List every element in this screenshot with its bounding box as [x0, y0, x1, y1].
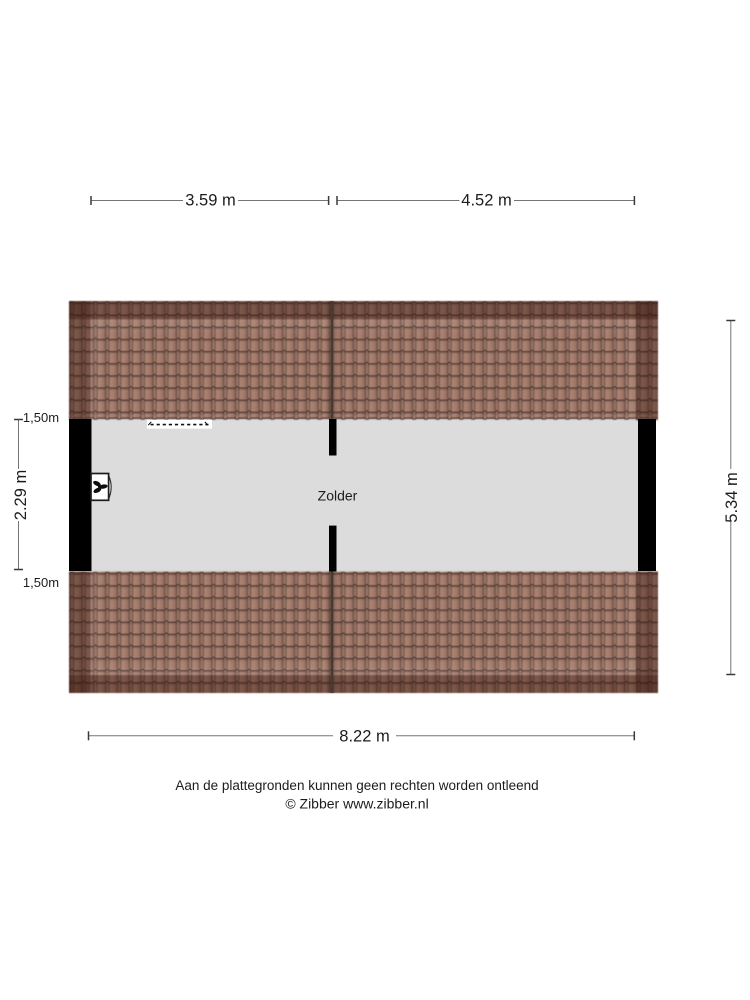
svg-text:2.29 m: 2.29 m [12, 470, 30, 520]
svg-text:1,50m: 1,50m [23, 575, 59, 590]
svg-text:5.34 m: 5.34 m [723, 472, 741, 522]
svg-text:8.22 m: 8.22 m [339, 728, 389, 746]
svg-text:© Zibber www.zibber.nl: © Zibber www.zibber.nl [285, 796, 428, 812]
svg-text:4.52 m: 4.52 m [461, 192, 511, 210]
svg-text:3.59 m: 3.59 m [185, 192, 235, 210]
svg-text:Zolder: Zolder [318, 488, 358, 504]
svg-text:Aan de plattegronden kunnen ge: Aan de plattegronden kunnen geen rechten… [175, 778, 538, 793]
svg-text:1,50m: 1,50m [23, 410, 59, 425]
